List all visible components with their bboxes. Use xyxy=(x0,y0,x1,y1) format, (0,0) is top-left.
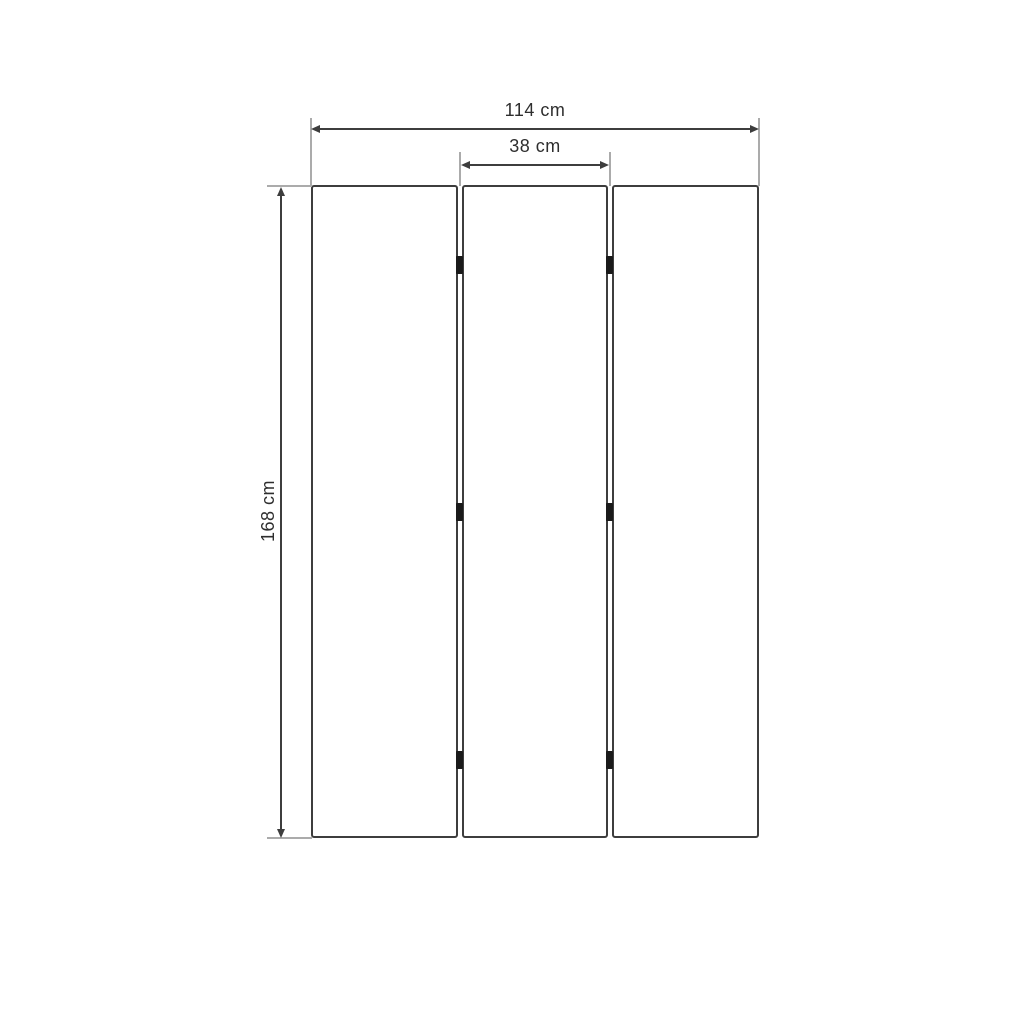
dimension-diagram: 114 cm 38 cm 168 cm xyxy=(0,0,1024,1024)
hinge-icon xyxy=(456,751,463,769)
panel-width-dimension-line xyxy=(464,164,606,166)
panel-left xyxy=(311,185,458,838)
arrow-right-icon xyxy=(600,161,609,169)
hinge-icon xyxy=(456,503,463,521)
panel-right xyxy=(612,185,759,838)
arrow-left-icon xyxy=(311,125,320,133)
arrow-down-icon xyxy=(277,829,285,838)
hinge-icon xyxy=(456,256,463,274)
extension-line xyxy=(267,185,312,187)
height-dimension-line xyxy=(280,191,282,833)
hinge-icon xyxy=(606,751,613,769)
arrow-up-icon xyxy=(277,187,285,196)
extension-line xyxy=(609,152,611,186)
total-width-dimension-line xyxy=(314,128,756,130)
extension-line xyxy=(459,152,461,186)
hinge-icon xyxy=(606,503,613,521)
total-width-label: 114 cm xyxy=(311,99,759,121)
arrow-right-icon xyxy=(750,125,759,133)
panel-width-label: 38 cm xyxy=(459,135,611,157)
panel-middle xyxy=(462,185,608,838)
extension-line xyxy=(267,837,312,839)
hinge-icon xyxy=(606,256,613,274)
height-label: 168 cm xyxy=(257,465,279,557)
arrow-left-icon xyxy=(461,161,470,169)
